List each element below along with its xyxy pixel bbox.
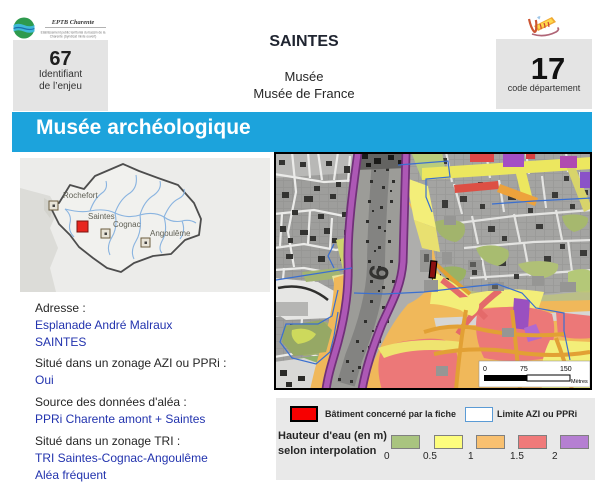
svg-text:EPTB Charente: EPTB Charente — [51, 19, 95, 26]
svg-text:Rochefort: Rochefort — [63, 191, 98, 200]
svg-text:Charente (Syndicat mixte ouver: Charente (Syndicat mixte ouvert) — [50, 35, 97, 39]
svg-text:Mètres: Mètres — [571, 379, 588, 385]
svg-text:75: 75 — [520, 366, 528, 373]
svg-text:Angoulême: Angoulême — [150, 229, 191, 238]
svg-text:Cognac: Cognac — [113, 220, 141, 229]
svg-text:150: 150 — [560, 366, 572, 373]
svg-text:0: 0 — [483, 366, 487, 373]
svg-text:Saintes: Saintes — [88, 212, 115, 221]
